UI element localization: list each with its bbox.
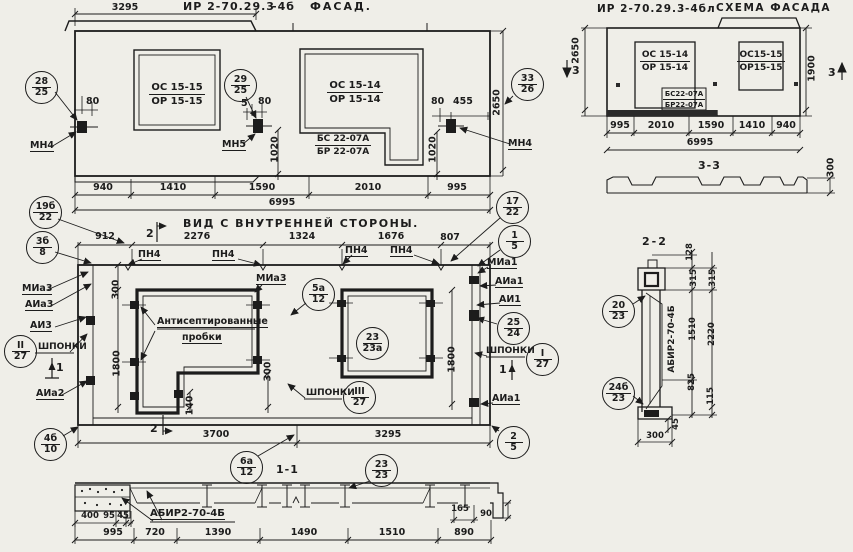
- window-mark-bottom: ОР15-15: [739, 62, 782, 73]
- balloon-bottom: 22: [506, 208, 519, 218]
- section-3-3-profile: [607, 175, 835, 196]
- balloon-bottom: 23а: [363, 344, 383, 354]
- facade-code-suffix: -4б: [272, 0, 295, 13]
- window-mark-bottom: ОР 15-14: [329, 93, 380, 105]
- anchor-label-mn5: МН5: [222, 139, 246, 151]
- balloon-bottom: 10: [44, 445, 57, 455]
- window-mark-top: ОС15-15: [737, 50, 784, 62]
- window-mark-top: ОС 15-14: [640, 50, 690, 62]
- dim-940: 940: [86, 182, 120, 193]
- drawing-sheet: 3295 ИР 2-70.29.3 -4б ФАСАД. ОС 15-15 ОР…: [0, 0, 853, 552]
- facade-title: ФАСАД.: [310, 0, 372, 13]
- facade-window-left-label: ОС 15-15 ОР 15-15: [147, 82, 207, 107]
- label-antiseptic-plugs-line2: пробки: [182, 332, 222, 344]
- dim-995: 995: [96, 527, 130, 538]
- dim-80-left: 80: [86, 96, 99, 107]
- dim-2276: 2276: [178, 231, 216, 242]
- balloon-19b-22: 19б 22: [29, 196, 62, 229]
- label-shponki-center: ШПОНКИ: [306, 388, 355, 398]
- section-2-2-label: АБИР2-70-4Б: [667, 296, 677, 382]
- balloon-bottom: 25: [234, 86, 247, 96]
- balloon-4b-10: 4б 10: [34, 428, 67, 461]
- label-pn4-1: ПН4: [138, 249, 161, 261]
- dim-45-sec: 45: [671, 416, 681, 432]
- label-ai1: АИ1: [499, 294, 521, 306]
- balloon-bottom: 8: [39, 248, 46, 258]
- dim-1510-sec: 1510: [688, 316, 698, 342]
- window-mark-bottom: ОР 15-15: [151, 95, 202, 107]
- label-pn4-2: ПН4: [212, 249, 235, 261]
- label-mia1: МИа1: [487, 257, 517, 269]
- schema-section3-right: 3: [828, 66, 836, 79]
- inner-leaders: [47, 218, 512, 456]
- label-aia3-left: АИа3: [25, 299, 53, 311]
- dim-2010: 2010: [351, 182, 385, 193]
- dim-1490: 1490: [285, 527, 323, 538]
- dim-1510: 1510: [373, 527, 411, 538]
- label-shponki-right: ШПОНКИ: [486, 346, 535, 356]
- label-aia2: АИа2: [36, 388, 64, 400]
- schema-door-label: БС22-07А БР22-07А: [663, 90, 705, 109]
- schema-dim-940: 940: [769, 120, 803, 131]
- section-1-1-label: АБИР2-70-4Б: [150, 508, 225, 520]
- dim-455: 455: [453, 96, 473, 107]
- drawing-linework: [0, 0, 853, 552]
- label-shponki-left: ШПОНКИ: [38, 342, 87, 352]
- balloon-bottom: 23: [375, 471, 388, 481]
- schema-dim-1410: 1410: [733, 120, 771, 131]
- dim-400: 400: [78, 511, 102, 521]
- schema-code: ИР 2-70.29.3: [597, 3, 685, 15]
- dim-128: 128: [685, 242, 695, 262]
- balloon-23-23a: 23 23а: [356, 327, 389, 360]
- section1-marker-right: 1: [499, 363, 507, 376]
- section-2-2-title: 2-2: [642, 235, 668, 248]
- dim-1676: 1676: [372, 231, 410, 242]
- label-aia1: АИа1: [495, 276, 523, 288]
- balloon-6a-12: 6а 12: [230, 451, 263, 484]
- dim-825: 825: [687, 372, 697, 392]
- balloon-bottom: 27: [536, 360, 549, 370]
- balloon-20-23: 20 23: [602, 295, 635, 328]
- balloon-33-26: 33 26: [511, 68, 544, 101]
- section-3-3-title: 3-3: [698, 159, 721, 172]
- balloon-bottom: 23: [612, 394, 625, 404]
- balloon-bottom: 26: [521, 85, 534, 95]
- section-2-2-anchor: [644, 410, 659, 417]
- dim-300-right: 300: [263, 362, 274, 382]
- dim-80-right: 80: [431, 96, 444, 107]
- dim-1020-right: 1020: [428, 136, 439, 164]
- label-aia1-bottom: АИа1: [492, 393, 520, 405]
- balloon-bottom: 27: [353, 398, 366, 408]
- dim-3295: 3295: [371, 429, 405, 440]
- schema-dim-1590: 1590: [692, 120, 730, 131]
- balloon-5a-12: 5а 12: [302, 278, 335, 311]
- schema-dim-1900: 1900: [807, 55, 818, 83]
- facade-door-label: БС 22-07А БР 22-07А: [310, 134, 376, 157]
- dim-115: 115: [706, 386, 716, 406]
- schema-code-suffix: -4бл: [685, 3, 716, 15]
- dim-995: 995: [440, 182, 474, 193]
- balloon-bottom: 24: [507, 329, 520, 339]
- dim-720: 720: [138, 527, 172, 538]
- dim-1324: 1324: [283, 231, 321, 242]
- balloon-bottom: 12: [240, 468, 253, 478]
- label-antiseptic-plugs-line1: Антисептированные: [157, 316, 268, 328]
- balloon-25-24: 25 24: [497, 312, 530, 345]
- schema-window-left-label: ОС 15-14 ОР 15-14: [636, 50, 694, 73]
- balloon-3b-8: 3б 8: [26, 231, 59, 264]
- dim-2650: 2650: [492, 89, 503, 117]
- balloon-bottom: 5: [510, 443, 517, 453]
- balloon-28-25: 28 25: [25, 71, 58, 104]
- dim-3700: 3700: [199, 429, 233, 440]
- schema-dim-2010: 2010: [642, 120, 680, 131]
- balloon-bottom: 27: [14, 352, 27, 362]
- dim-315-a: 315: [689, 268, 699, 288]
- label-pn4-4: ПН4: [390, 245, 413, 257]
- door-mark-bottom: БР 22-07А: [317, 146, 369, 157]
- dim-6995-total: 6995: [252, 197, 312, 208]
- facade-window-right-label: ОС 15-14 ОР 15-14: [322, 80, 388, 105]
- dim-315-b: 315: [708, 268, 718, 288]
- dim-1390: 1390: [199, 527, 237, 538]
- facade-top-dim: 3295: [95, 2, 155, 13]
- door-mark-top: БС 22-07А: [315, 134, 371, 146]
- schema-dim-6995: 6995: [670, 137, 730, 148]
- balloon-bottom: 12: [312, 295, 325, 305]
- section-3-3-dim-300: 300: [826, 158, 837, 178]
- schema-title: СХЕМА ФАСАДА: [716, 2, 831, 14]
- label-pn4-3: ПН4: [345, 245, 368, 257]
- schema-section3-left: 3: [572, 64, 580, 77]
- dim-1800-left: 1800: [112, 350, 123, 378]
- schema-dim-2650: 2650: [571, 37, 582, 65]
- balloon-1-5: 1 5: [498, 225, 531, 258]
- dim-140: 140: [185, 396, 196, 416]
- window-mark-top: ОС 15-14: [327, 80, 382, 93]
- dim-165: 165: [448, 504, 472, 514]
- dim-1020-left: 1020: [270, 136, 281, 164]
- section1-marker-left: 1: [56, 361, 64, 374]
- dim-890: 890: [447, 527, 481, 538]
- dim-1590: 1590: [245, 182, 279, 193]
- door-mark-top: БС22-07А: [663, 90, 705, 100]
- window-mark-bottom: ОР 15-14: [642, 62, 688, 73]
- balloon-24b-23: 24б 23: [602, 377, 635, 410]
- facade-code: ИР 2-70.29.3: [183, 0, 275, 13]
- dim-90: 90: [477, 509, 495, 519]
- dim-5: 5: [241, 98, 248, 109]
- label-mia3-left: МИа3: [22, 283, 52, 295]
- dim-45: 45: [115, 511, 131, 521]
- door-mark-bottom: БР22-07А: [665, 100, 703, 109]
- balloon-bottom: 5: [511, 242, 518, 252]
- balloon-17-22: 17 22: [496, 191, 529, 224]
- dim-80-mid: 80: [258, 96, 271, 107]
- dim-2220: 2220: [707, 321, 717, 347]
- balloon-bottom: 22: [39, 213, 52, 223]
- anchor-label-mn4-right: МН4: [508, 138, 532, 150]
- label-ai3: АИ3: [30, 320, 52, 332]
- window-mark-top: ОС 15-15: [149, 82, 204, 95]
- section-1-1-title: 1-1: [276, 463, 299, 476]
- anchor-label-mn4-left: МН4: [30, 140, 54, 152]
- label-mia3-center: МИа3: [256, 273, 286, 285]
- balloon-23-23: 23 23: [365, 454, 398, 487]
- balloon-bottom: 23: [612, 312, 625, 322]
- balloon-II-27: II 27: [4, 335, 37, 368]
- dim-1800-right: 1800: [447, 346, 458, 374]
- balloon-2-5: 2 5: [497, 426, 530, 459]
- dim-300-sec: 300: [644, 431, 666, 441]
- inner-view-title: ВИД С ВНУТРЕННЕЙ СТОРОНЫ.: [183, 217, 419, 230]
- balloon-bottom: 25: [35, 88, 48, 98]
- dim-807: 807: [433, 232, 467, 243]
- schema-window-right-label: ОС15-15 ОР15-15: [740, 50, 782, 73]
- inner-outline: [35, 222, 525, 448]
- schema-dim-995: 995: [603, 120, 637, 131]
- section2-marker-top: 2: [146, 227, 154, 240]
- dim-1410: 1410: [156, 182, 190, 193]
- dim-912: 912: [88, 231, 122, 242]
- dim-300-top: 300: [111, 280, 122, 300]
- schema-outline: [581, 18, 812, 153]
- section2-marker-bottom: 2: [150, 422, 158, 435]
